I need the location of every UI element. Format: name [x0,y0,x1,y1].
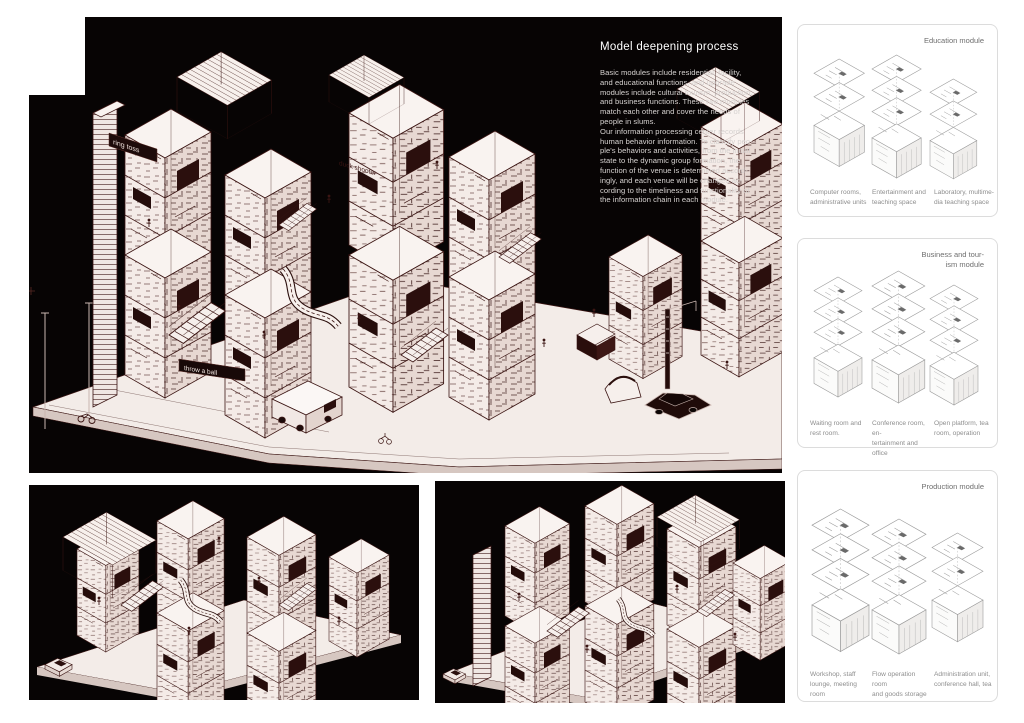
caption: Entertainment and teaching space [872,188,932,208]
business-exploded-diagrams [808,269,988,415]
bottom-middle-axonometric-drawing [435,481,785,703]
bottom-left-axonometric-drawing [29,485,419,700]
description-block: Model deepening process Basic modules in… [600,41,772,205]
production-module-card: Production module Workshop, staff lounge… [797,470,998,702]
card-title: Business and tour- ism module [921,250,984,270]
description-text: Basic modules include residential, facil… [600,68,772,205]
caption: Open platform, tea room, operation [934,419,994,439]
caption: Administration unit, conference hall, te… [934,670,994,690]
card-title: Education module [924,36,984,46]
caption: Flow operation room and goods storage [872,670,932,700]
caption: Conference room, en- tertainment and off… [872,419,932,459]
main-drawing-panel: ring toss duck shooter throw a ball Mode… [29,17,782,473]
card-title: Production module [921,482,984,492]
caption: Waiting room and rest room. [810,419,870,439]
production-exploded-diagrams [808,505,988,665]
caption: Laboratory, multime- dia teaching space [934,188,994,208]
silo-ladder-tower [473,546,491,686]
page-title: Model deepening process [600,41,772,53]
caption: Computer rooms, administrative units [810,188,870,208]
education-exploded-diagrams [808,53,988,185]
education-module-card: Education module Computer rooms, adminis… [797,24,998,217]
business-tourism-module-card: Business and tour- ism module Waiting ro… [797,238,998,448]
caption: Workshop, staff lounge, meeting room [810,670,870,700]
